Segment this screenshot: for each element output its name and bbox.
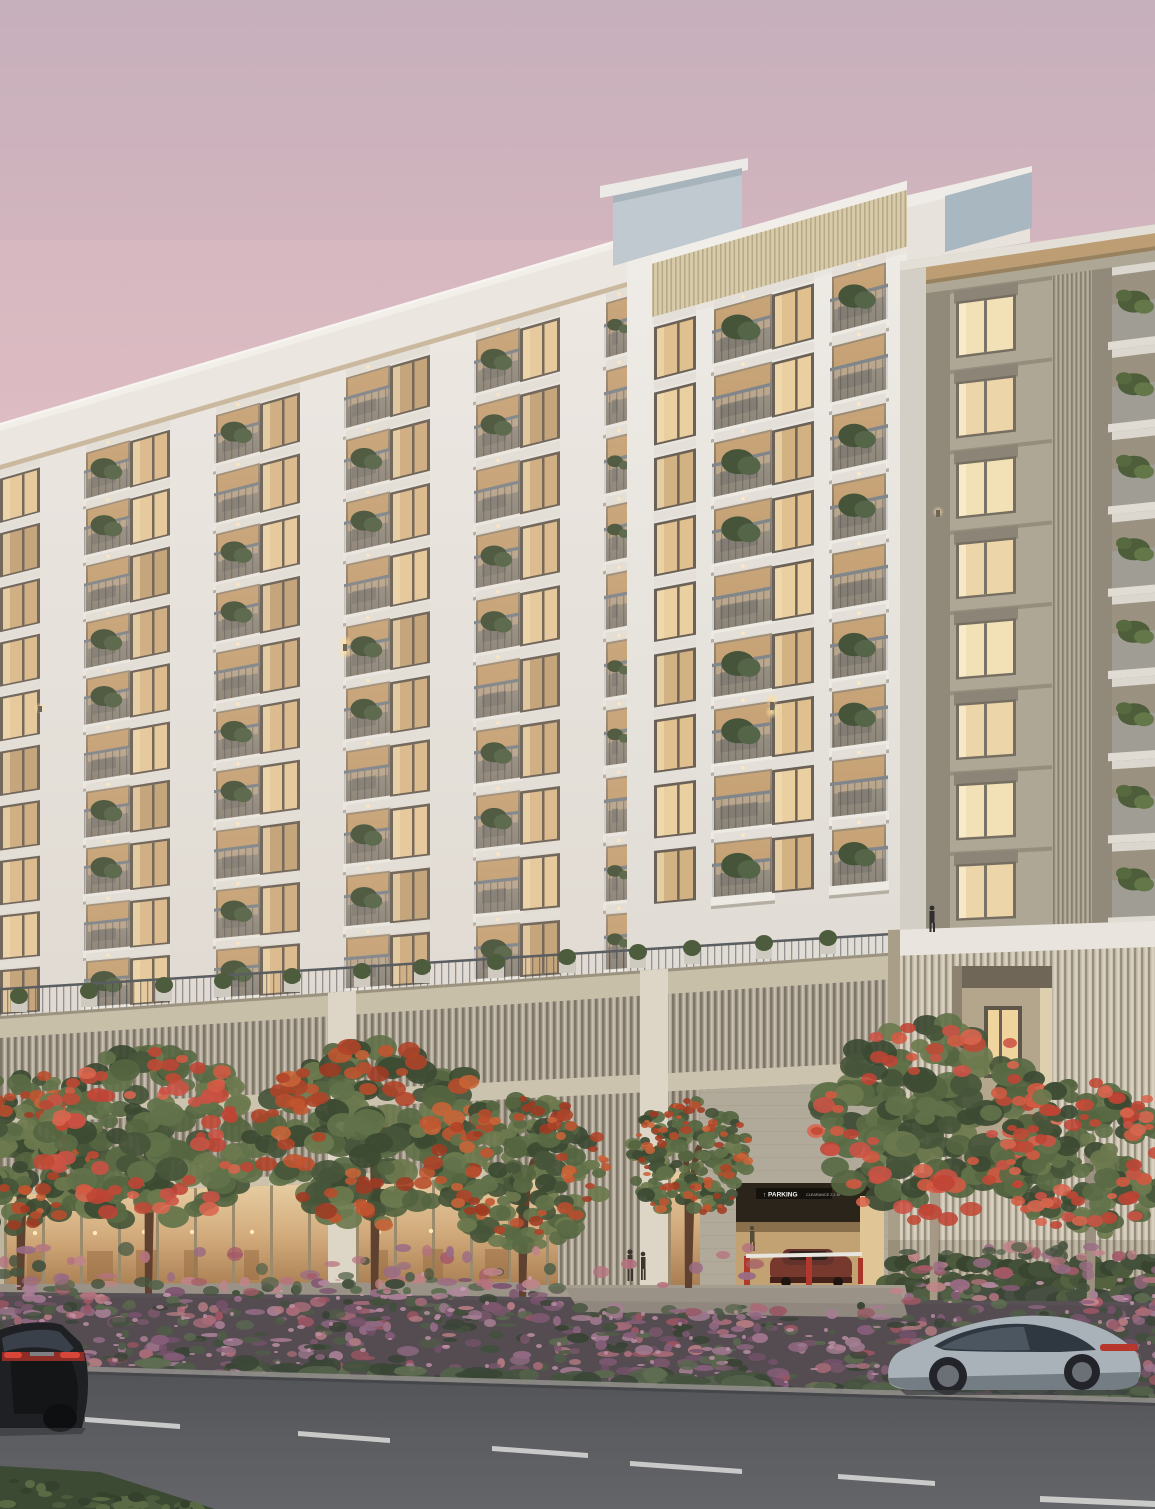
svg-text:↑ PARKING: ↑ PARKING — [763, 1192, 798, 1199]
svg-text:CLEARANCE 2.2 M: CLEARANCE 2.2 M — [806, 1193, 840, 1197]
